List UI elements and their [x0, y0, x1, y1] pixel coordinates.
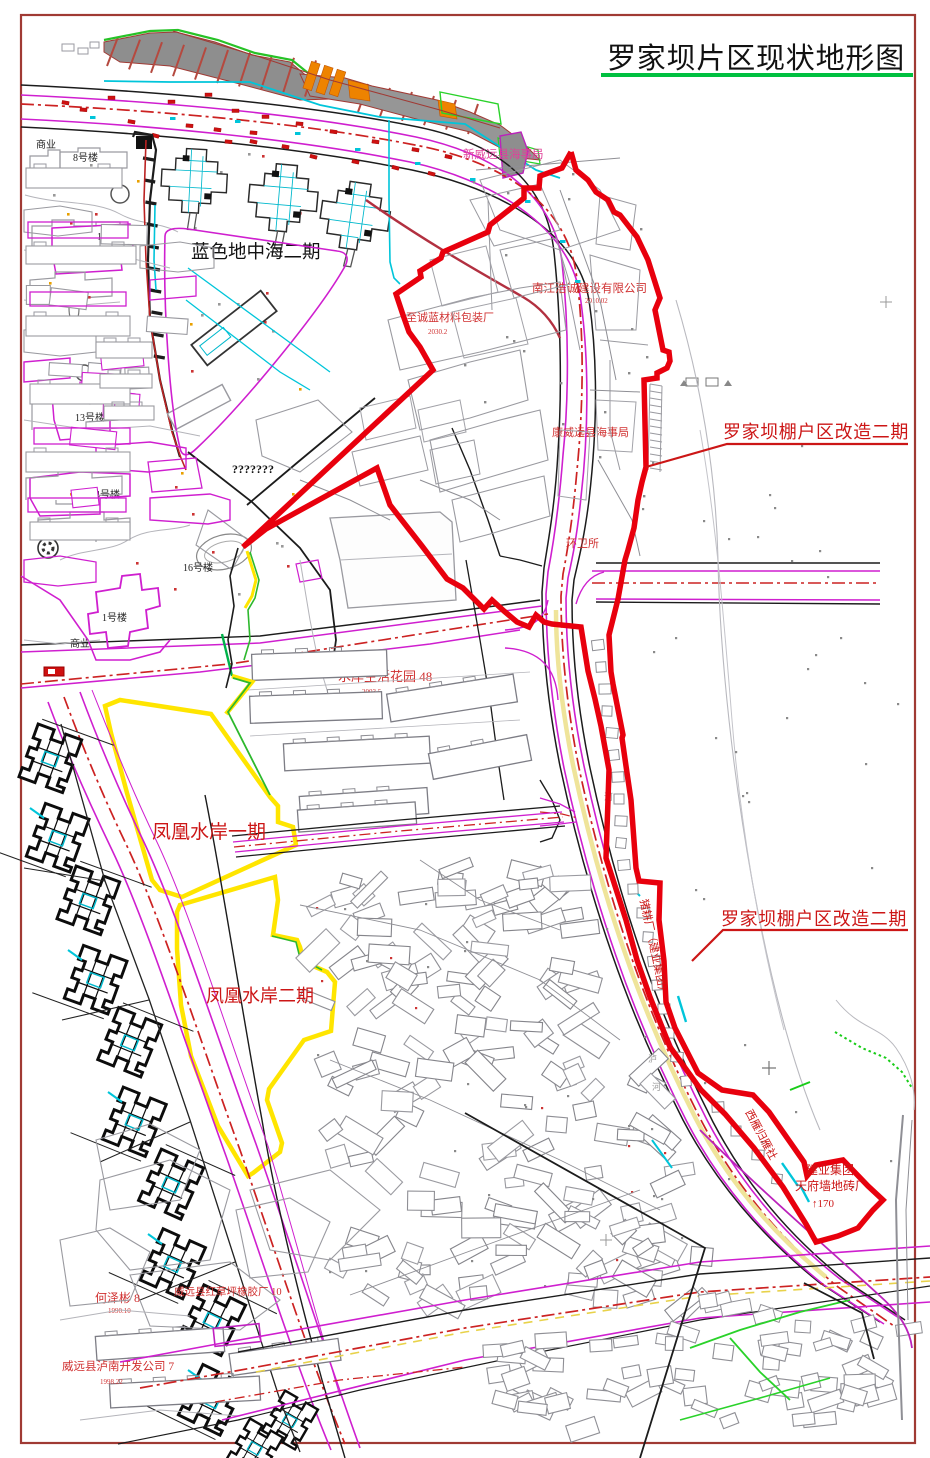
svg-text:威远县泸南开发公司 7: 威远县泸南开发公司 7 [62, 1359, 174, 1373]
svg-text:至诚蓝材料包装厂: 至诚蓝材料包装厂 [406, 310, 494, 324]
svg-text:1998.22: 1998.22 [100, 1378, 123, 1386]
svg-text:罗家坝棚户区改造二期: 罗家坝棚户区改造二期 [721, 909, 907, 929]
svg-text:1号楼: 1号楼 [102, 611, 127, 624]
svg-text:8号楼: 8号楼 [73, 151, 98, 164]
svg-text:建业集团: 建业集团 [806, 1162, 854, 1177]
svg-text:凤凰水岸一期: 凤凰水岸一期 [152, 821, 266, 843]
svg-text:罗家坝片区现状地形图: 罗家坝片区现状地形图 [607, 42, 905, 75]
svg-text:???????: ??????? [232, 462, 274, 476]
svg-text:16号楼: 16号楼 [183, 561, 213, 574]
svg-text:天府墙地砖厂: 天府墙地砖厂 [795, 1178, 867, 1193]
svg-text:河: 河 [652, 1081, 661, 1092]
svg-text:2030.2: 2030.2 [428, 328, 448, 336]
svg-text:环卫所: 环卫所 [566, 537, 599, 550]
svg-text:罗家坝棚户区改造二期: 罗家坝棚户区改造二期 [723, 422, 909, 442]
svg-text:新威远县海事局: 新威远县海事局 [463, 147, 544, 161]
svg-text:凤凰水岸二期: 凤凰水岸二期 [206, 986, 314, 1006]
svg-text:泸: 泸 [648, 1054, 657, 1064]
svg-text:↑170: ↑170 [812, 1198, 835, 1210]
svg-text:南江浩诚建设有限公司: 南江浩诚建设有限公司 [532, 281, 647, 295]
svg-text:威远县红草坪橡胶厂 10: 威远县红草坪橡胶厂 10 [174, 1285, 282, 1298]
svg-text:商业: 商业 [36, 138, 56, 151]
